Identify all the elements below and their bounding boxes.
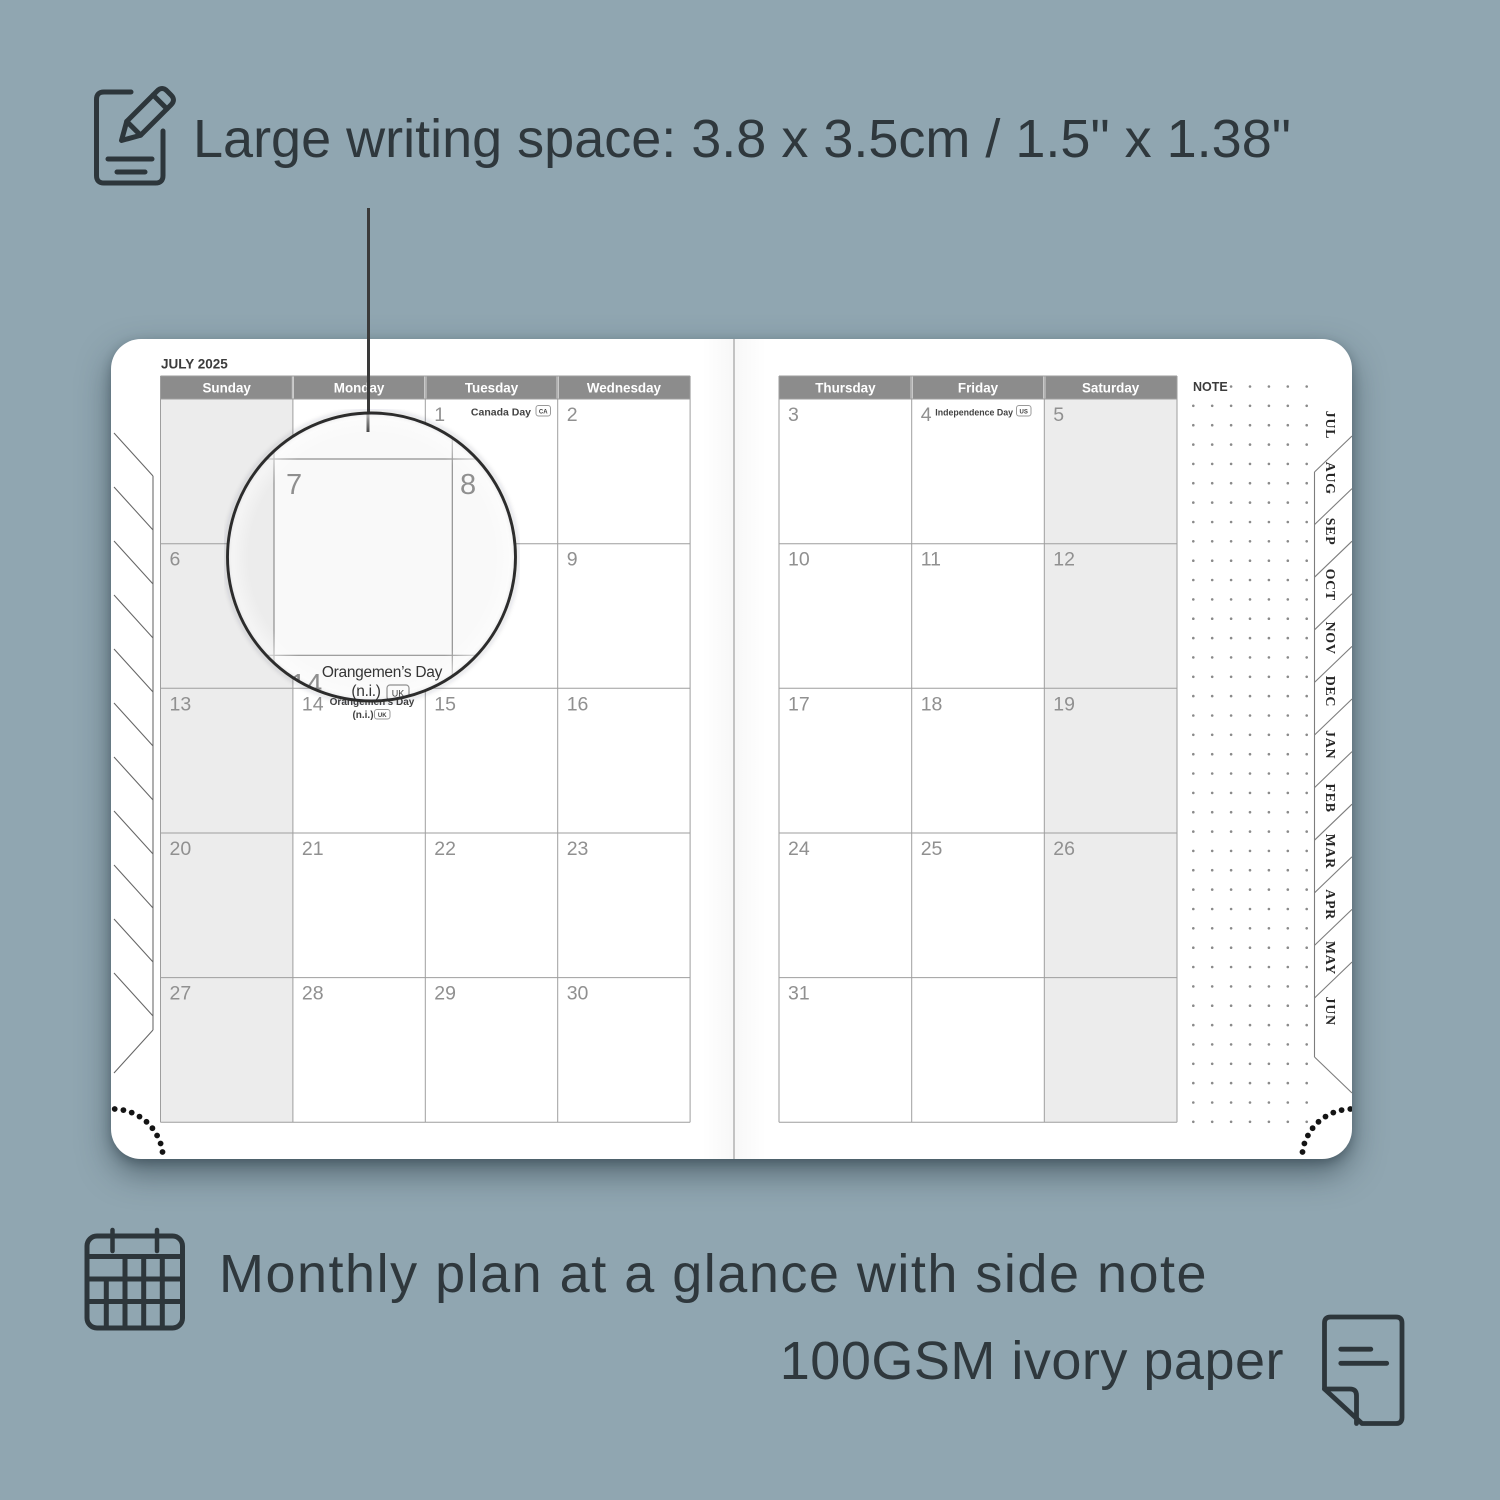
svg-text:31: 31	[788, 983, 810, 1005]
svg-text:NOTE: NOTE	[1193, 380, 1228, 394]
svg-text:CA: CA	[539, 410, 548, 416]
svg-text:16: 16	[567, 693, 589, 715]
svg-text:17: 17	[788, 693, 810, 715]
svg-text:12: 12	[1053, 549, 1075, 571]
svg-text:JUL: JUL	[1323, 411, 1338, 439]
svg-text:OCT: OCT	[1323, 569, 1338, 601]
svg-text:2: 2	[567, 404, 578, 426]
svg-text:APR: APR	[1323, 889, 1338, 920]
svg-text:26: 26	[1053, 838, 1075, 860]
svg-text:30: 30	[567, 983, 589, 1005]
svg-text:21: 21	[302, 838, 324, 860]
svg-text:Friday: Friday	[958, 381, 999, 396]
svg-text:3: 3	[788, 404, 799, 426]
svg-text:NOV: NOV	[1323, 622, 1338, 655]
svg-text:UK: UK	[378, 713, 387, 719]
svg-text:4: 4	[921, 404, 932, 426]
svg-text:8: 8	[460, 469, 476, 501]
svg-text:29: 29	[434, 983, 456, 1005]
svg-text:24: 24	[788, 838, 810, 860]
svg-text:18: 18	[921, 693, 943, 715]
svg-text:28: 28	[302, 983, 324, 1005]
svg-text:23: 23	[567, 838, 589, 860]
svg-text:Independence Day: Independence Day	[935, 408, 1013, 418]
svg-text:6: 6	[170, 549, 181, 571]
svg-text:9: 9	[567, 549, 578, 571]
svg-text:JAN: JAN	[1323, 730, 1338, 759]
svg-text:25: 25	[921, 838, 943, 860]
svg-text:27: 27	[170, 983, 192, 1005]
svg-text:Tuesday: Tuesday	[465, 381, 519, 396]
svg-text:Sunday: Sunday	[203, 381, 252, 396]
svg-text:US: US	[1020, 410, 1028, 416]
svg-text:JUN: JUN	[1323, 997, 1338, 1026]
svg-text:DEC: DEC	[1323, 676, 1338, 708]
svg-text:Monday: Monday	[334, 381, 385, 396]
svg-text:19: 19	[1053, 693, 1075, 715]
svg-text:AUG: AUG	[1323, 462, 1338, 495]
svg-text:(n.i.): (n.i.)	[352, 710, 373, 721]
svg-text:Wednesday: Wednesday	[587, 381, 662, 396]
svg-text:Orangemen’s Day: Orangemen’s Day	[322, 664, 443, 681]
svg-text:MAY: MAY	[1323, 941, 1338, 975]
svg-text:FEB: FEB	[1323, 783, 1338, 812]
svg-text:7: 7	[286, 469, 302, 501]
svg-text:20: 20	[170, 838, 192, 860]
svg-text:22: 22	[434, 838, 456, 860]
svg-text:13: 13	[170, 693, 192, 715]
svg-text:(n.i.): (n.i.)	[351, 683, 380, 700]
svg-text:JULY 2025: JULY 2025	[161, 357, 228, 372]
svg-text:5: 5	[1053, 404, 1064, 426]
svg-text:Saturday: Saturday	[1082, 381, 1140, 396]
svg-text:10: 10	[788, 549, 810, 571]
svg-text:11: 11	[921, 549, 941, 571]
svg-text:SEP: SEP	[1323, 518, 1338, 546]
svg-text:MAR: MAR	[1323, 834, 1338, 870]
svg-text:Thursday: Thursday	[815, 381, 876, 396]
